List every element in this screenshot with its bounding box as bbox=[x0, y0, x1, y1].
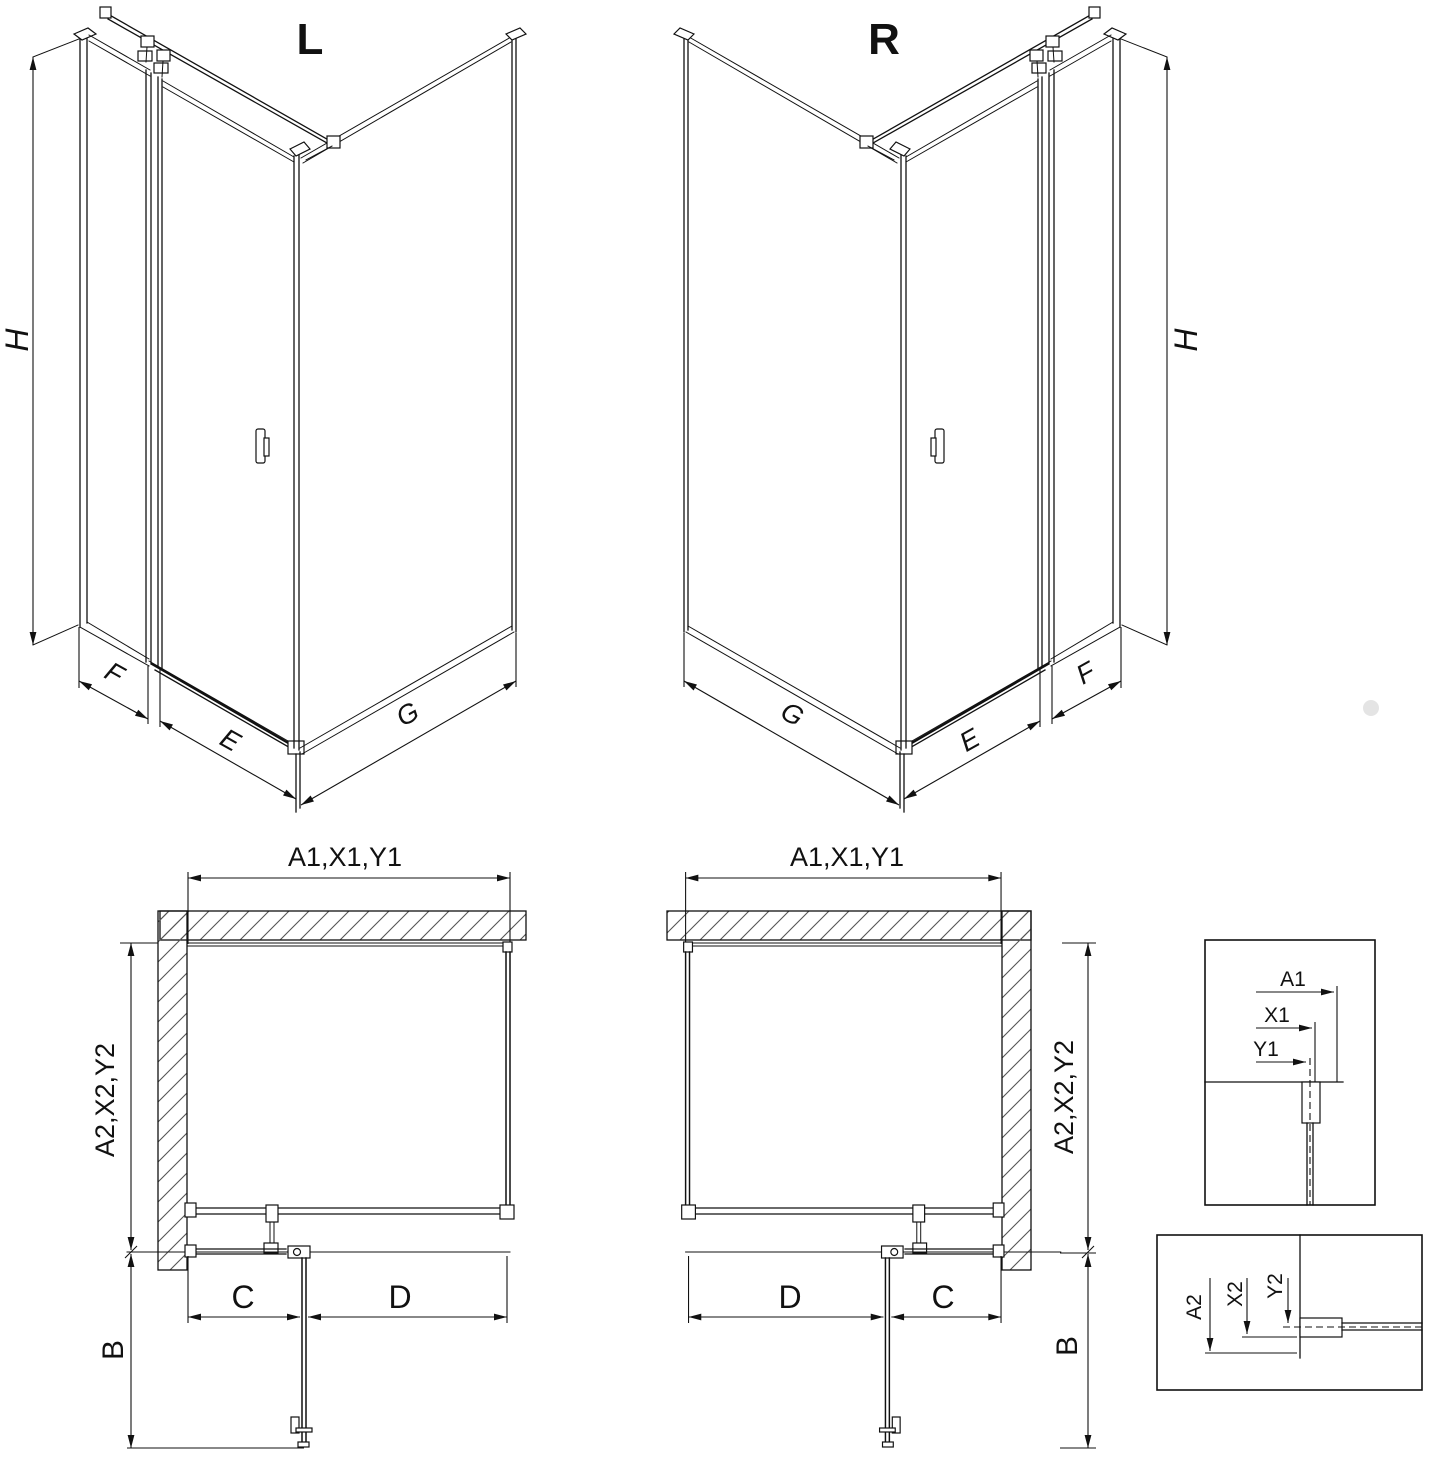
detail-x1-label: X1 bbox=[1264, 1004, 1290, 1027]
g-label-left: G bbox=[391, 696, 424, 732]
diagram-canvas: L R H H F E G F E G A1,X1,Y1 A1,X1,Y1 A2… bbox=[0, 0, 1430, 1460]
lplan-top-wall bbox=[160, 911, 526, 940]
e-label-left: E bbox=[215, 723, 246, 758]
rplan-right-wall bbox=[1002, 911, 1031, 1270]
lplan-depth-label: A2,X2,Y2 bbox=[90, 1043, 120, 1157]
l-view-label: L bbox=[297, 15, 324, 64]
detail-y1-label: Y1 bbox=[1253, 1038, 1279, 1061]
f-label-right: F bbox=[1071, 655, 1101, 690]
r-3d-view bbox=[674, 7, 1167, 812]
detail-a1-label: A1 bbox=[1280, 968, 1306, 991]
l-3d-view bbox=[33, 7, 526, 812]
lplan-a2-b-dimensions bbox=[120, 943, 304, 1448]
detail-y2-label: Y2 bbox=[1264, 1273, 1287, 1299]
rplan-a2-b-dimensions bbox=[1060, 943, 1096, 1448]
e-label-right: E bbox=[954, 722, 985, 757]
detail-x2-label: X2 bbox=[1224, 1281, 1247, 1307]
wall-profile-section bbox=[1302, 1082, 1320, 1123]
h-label-right: H bbox=[1168, 328, 1204, 352]
g-label-right: G bbox=[776, 696, 809, 732]
lplan-d-label: D bbox=[388, 1279, 411, 1315]
shower-enclosure-technical-diagram: L R H H F E G F E G A1,X1,Y1 A1,X1,Y1 A2… bbox=[0, 0, 1430, 1460]
rplan-b-label: B bbox=[1051, 1336, 1084, 1356]
rplan-d-label: D bbox=[778, 1279, 801, 1315]
lplan-c-label: C bbox=[231, 1279, 254, 1315]
f-label-left: F bbox=[100, 656, 130, 691]
rplan-width-label: A1,X1,Y1 bbox=[790, 842, 904, 872]
rplan-top-wall bbox=[667, 911, 1031, 940]
r-view-label: R bbox=[868, 15, 900, 64]
watermark-dot bbox=[1363, 700, 1379, 716]
rplan-c-label: C bbox=[931, 1279, 954, 1315]
h-label-left: H bbox=[0, 328, 35, 352]
lplan-width-label: A1,X1,Y1 bbox=[288, 842, 402, 872]
rplan-depth-label: A2,X2,Y2 bbox=[1049, 1040, 1079, 1154]
lplan-b-label: B bbox=[97, 1340, 130, 1360]
detail-a2-label: A2 bbox=[1183, 1294, 1206, 1320]
lplan-left-wall bbox=[158, 911, 187, 1270]
